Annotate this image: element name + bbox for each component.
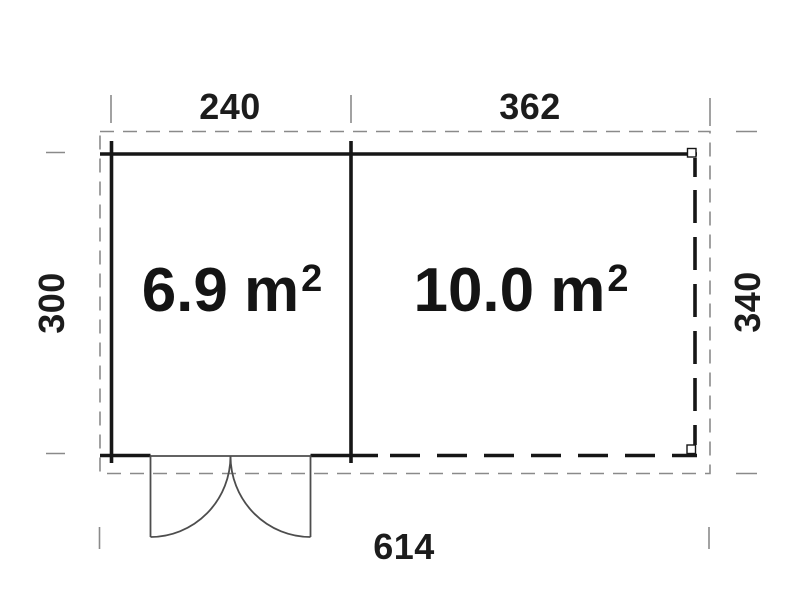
room-area-exponent: 2 bbox=[301, 258, 322, 300]
room-area-label-left: 6.9m2 bbox=[142, 260, 323, 322]
room-area-exponent: 2 bbox=[607, 258, 628, 300]
room-area-unit: m bbox=[550, 256, 605, 325]
room-area-value: 10.0 bbox=[413, 256, 534, 325]
dim-label-right-height: 340 bbox=[727, 271, 769, 333]
room-area-unit: m bbox=[244, 256, 299, 325]
room-area-label-right: 10.0m2 bbox=[413, 260, 628, 322]
floor-plan-canvas: 240 362 300 340 614 6.9m2 10.0m2 bbox=[0, 0, 800, 600]
dim-label-total-width: 614 bbox=[373, 526, 435, 568]
double-door-swing bbox=[151, 456, 311, 538]
dim-label-left-height: 300 bbox=[31, 272, 73, 334]
dim-label-top-left-width: 240 bbox=[199, 86, 261, 128]
floor-plan-drawing bbox=[0, 0, 800, 600]
dim-label-top-right-width: 362 bbox=[499, 86, 561, 128]
room-area-value: 6.9 bbox=[142, 256, 228, 325]
